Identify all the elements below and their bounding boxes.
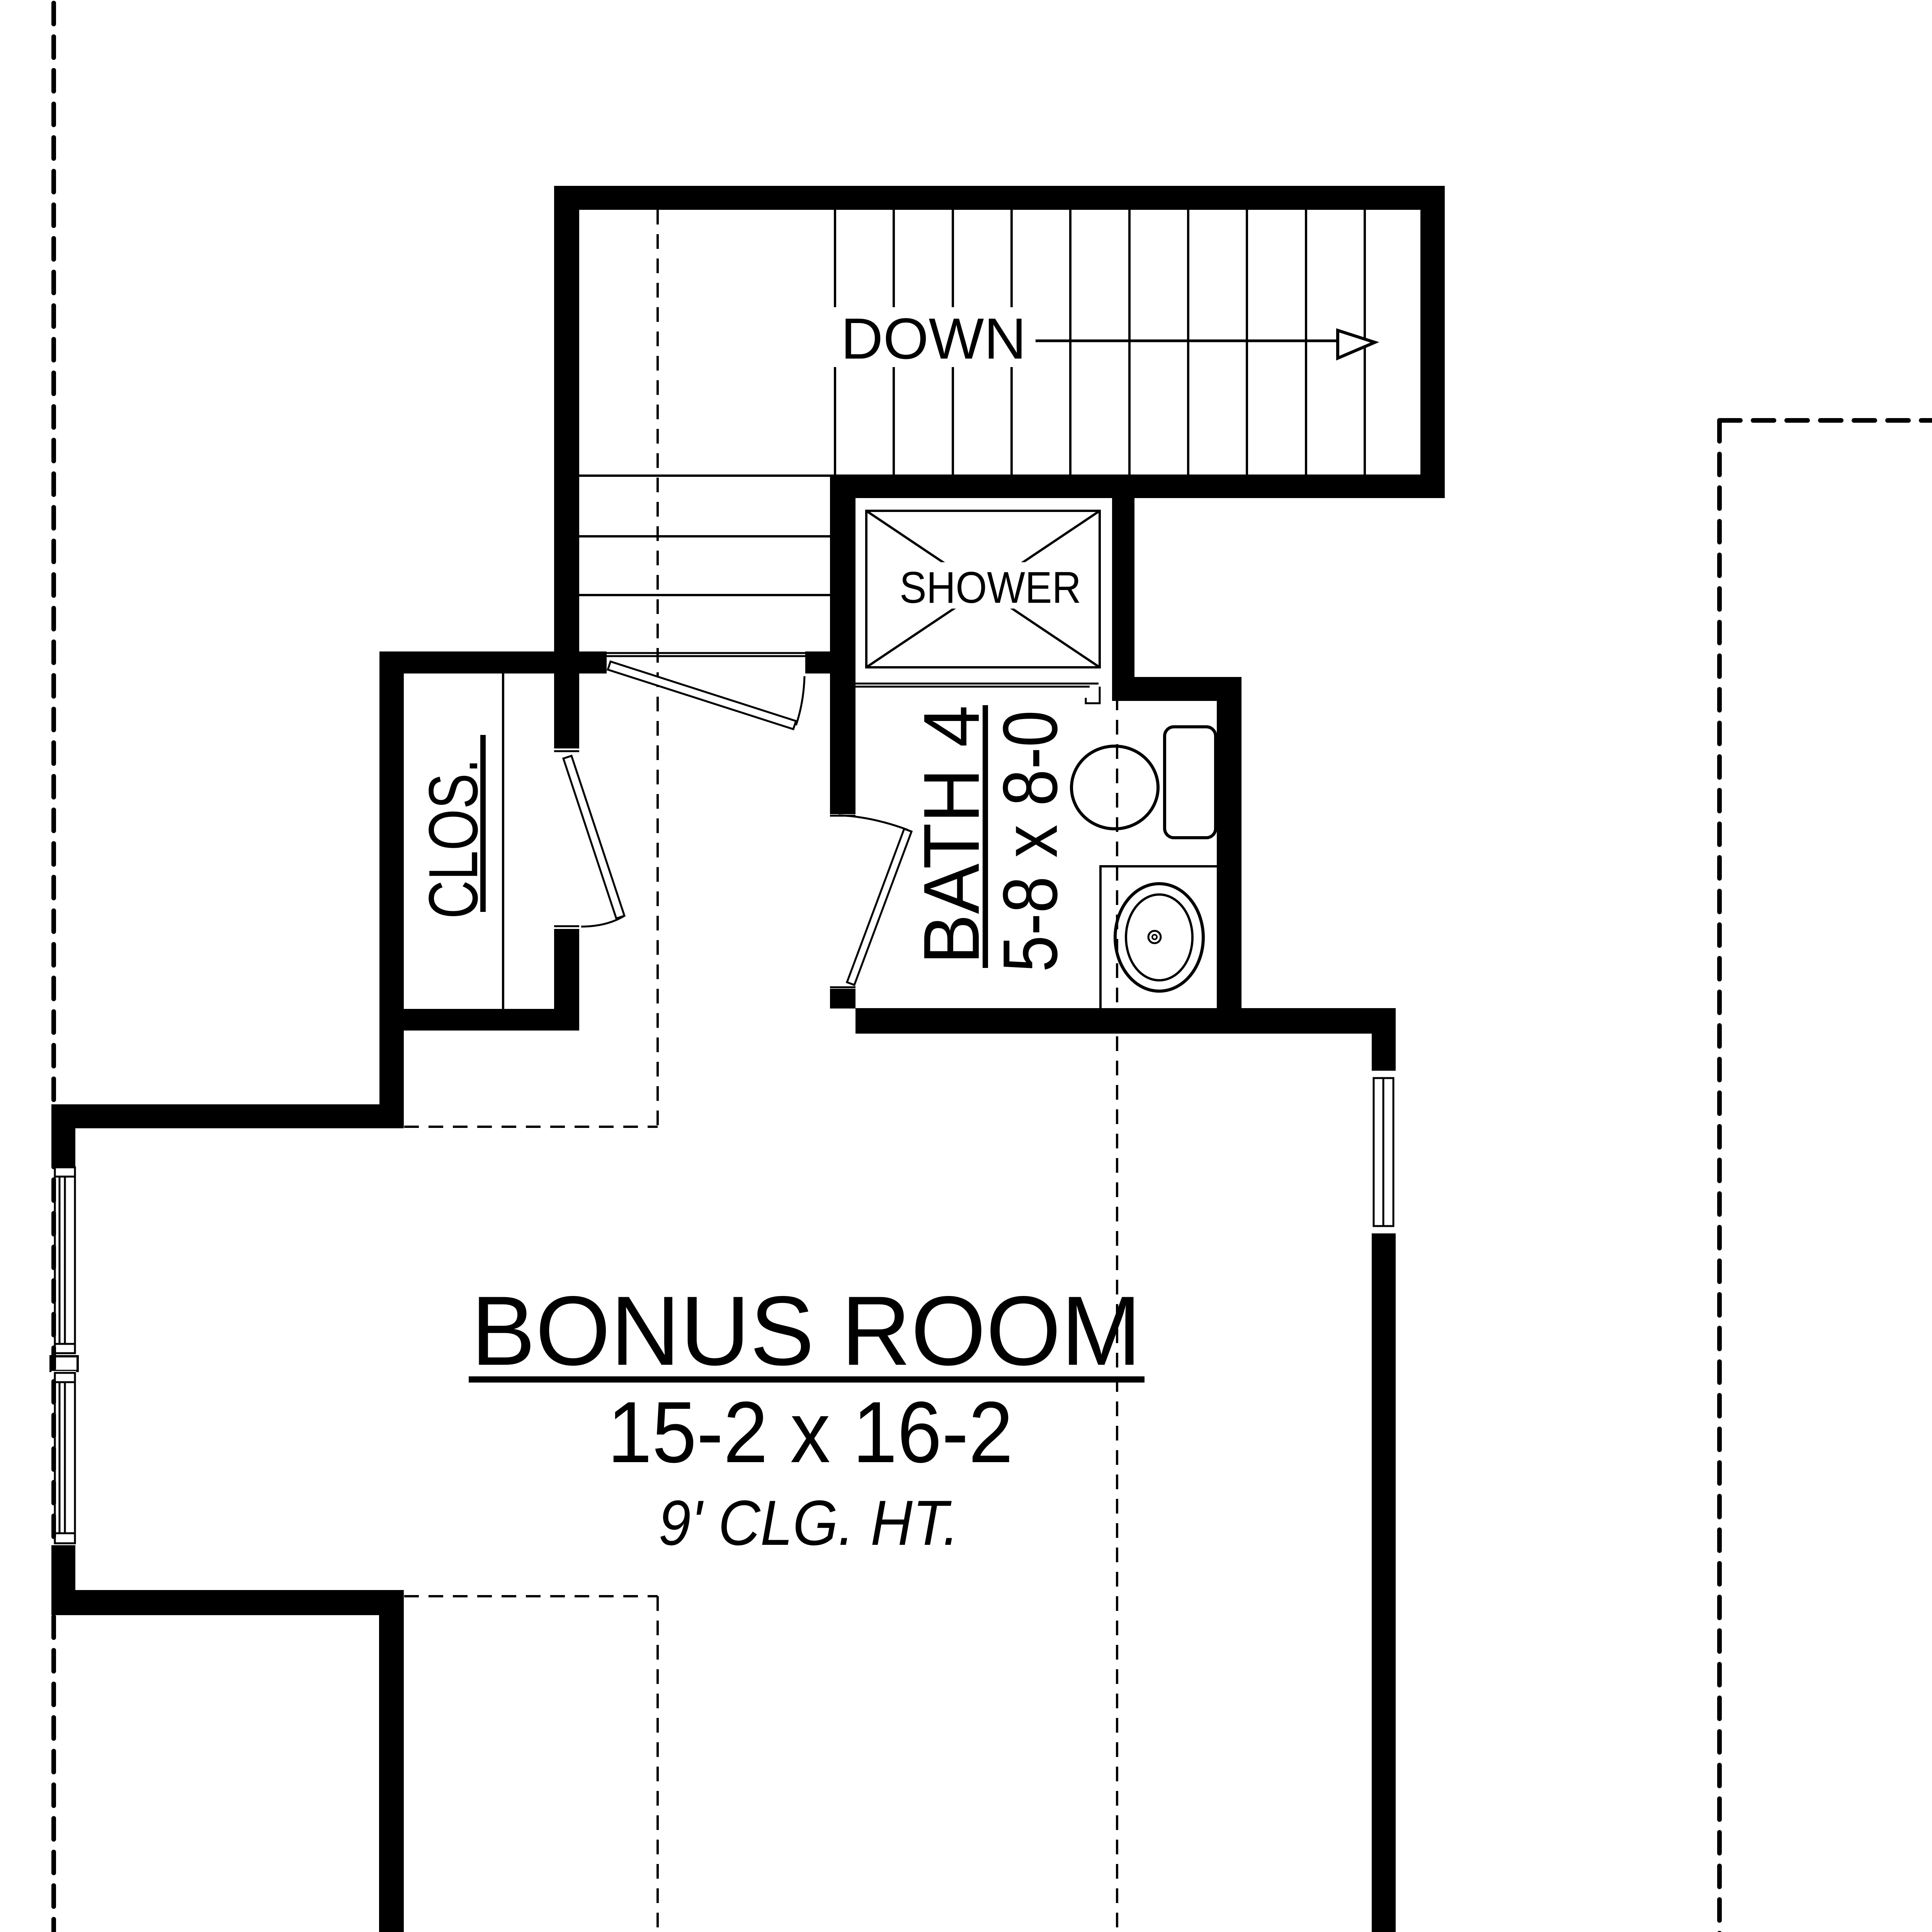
svg-text:SHOWER: SHOWER xyxy=(900,563,1081,612)
svg-text:BATH 4: BATH 4 xyxy=(907,705,996,964)
svg-text:9' CLG. HT.: 9' CLG. HT. xyxy=(658,1487,959,1558)
svg-text:15-2 x 16-2: 15-2 x 16-2 xyxy=(607,1383,1013,1481)
svg-text:DOWN: DOWN xyxy=(841,306,1026,371)
svg-text:5-8 x 8-0: 5-8 x 8-0 xyxy=(987,710,1073,972)
svg-text:BONUS ROOM: BONUS ROOM xyxy=(471,1276,1141,1386)
